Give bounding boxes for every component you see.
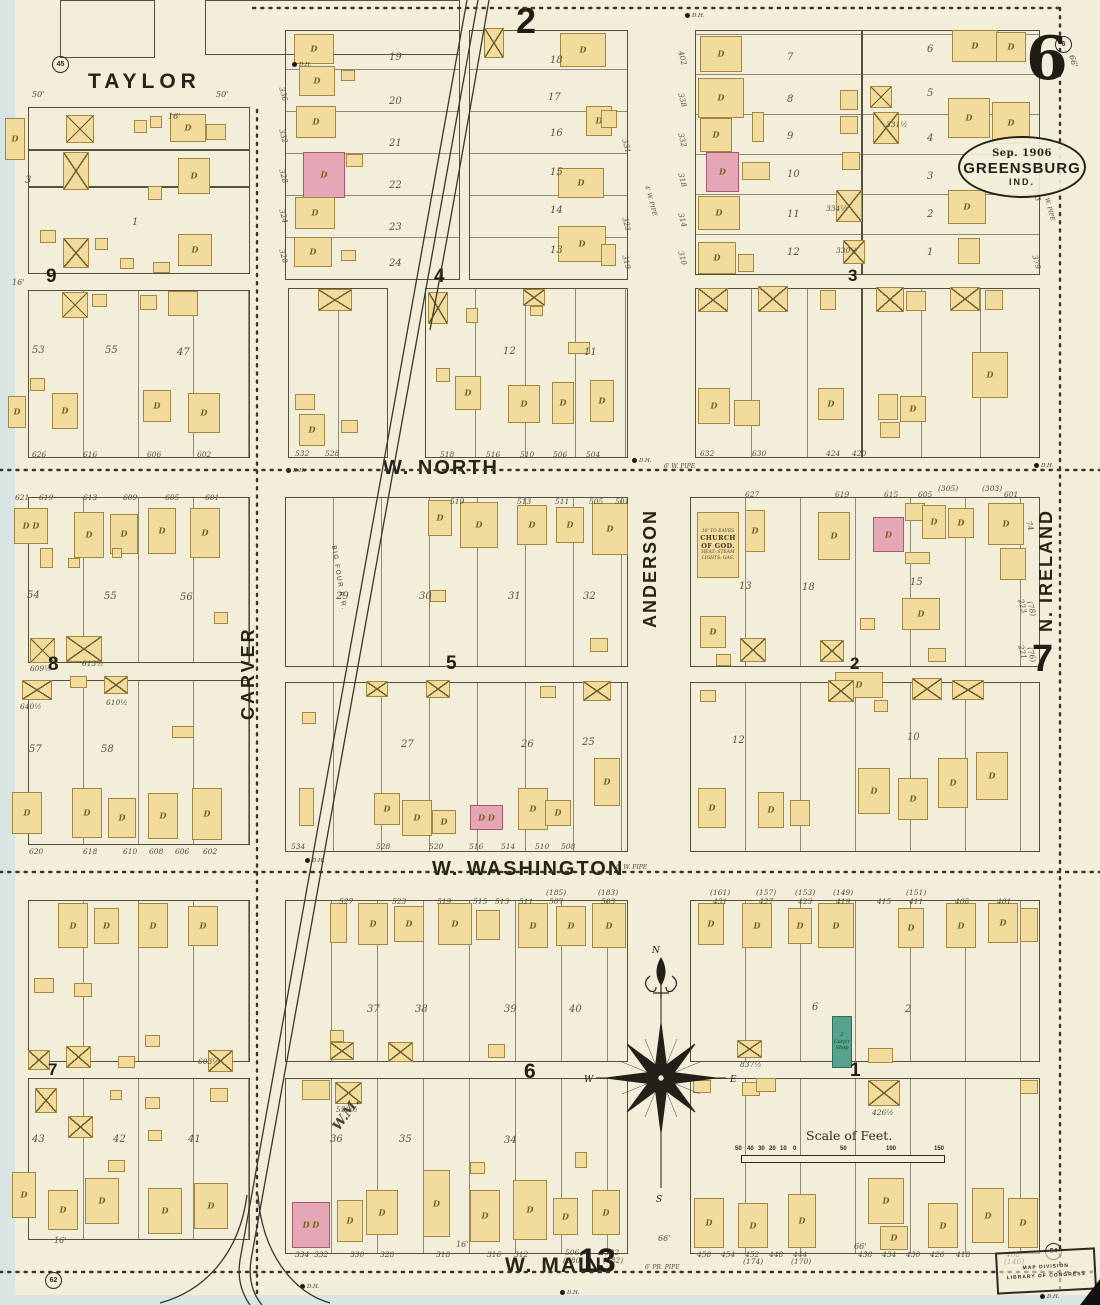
house-number: 602 (203, 847, 217, 856)
street-name: ANDERSON (640, 509, 661, 628)
building-frame: D (594, 758, 620, 806)
house-number: 430 (906, 1250, 920, 1259)
dwelling-label: D (699, 919, 723, 929)
building-outbuilding (868, 1080, 900, 1106)
building-frame (476, 910, 500, 940)
stamp-line-1: MAP DIVISION (1022, 1262, 1069, 1270)
building-frame: D (432, 810, 456, 834)
dwelling-label: D (149, 811, 177, 821)
dwelling-label: D (179, 245, 211, 255)
dwelling-label: D (75, 530, 103, 540)
building-frame: D (12, 792, 42, 834)
church-label-line: OF GOD. (701, 542, 735, 550)
circled-marker: 45 (52, 56, 69, 73)
building-frame: D (788, 1194, 816, 1248)
building-frame (341, 70, 355, 81)
lot-number: 13 (550, 245, 563, 256)
building-outbuilding (318, 289, 352, 311)
building-frame: D (996, 32, 1026, 62)
building-frame (68, 558, 80, 568)
dwelling-label: D (746, 526, 764, 536)
building-frame (734, 400, 760, 426)
hydrant-dot (305, 858, 310, 863)
house-number: 501 (615, 497, 629, 506)
building-frame: D (898, 778, 928, 820)
house-number: 419 (836, 897, 850, 906)
house-number: 318 (436, 1250, 450, 1259)
lot-number: 2 (905, 1004, 911, 1015)
lot-number: 58 (101, 744, 114, 755)
dwelling-label: D (593, 920, 625, 930)
hydrant-dot (632, 458, 637, 463)
building-frame (295, 394, 315, 410)
house-number: 606 (175, 847, 189, 856)
lot-number: 20 (389, 96, 402, 107)
lot-number: 7 (787, 52, 793, 63)
dwelling-label: D (179, 171, 209, 181)
building-frame: D (948, 98, 990, 138)
lot-number: 27 (401, 739, 414, 750)
pipe-label: 6' W. PIPE (664, 463, 695, 470)
building-frame: D (394, 906, 424, 942)
building-frame: D (556, 507, 584, 543)
house-number: (303) (982, 484, 1002, 493)
building-frame (790, 800, 810, 826)
dh-hydrant-marker: D.H. (560, 1290, 580, 1296)
block-number: 8 (48, 654, 59, 676)
building-frame: D (148, 793, 178, 839)
hydrant-dot (685, 13, 690, 18)
lot-number: 57 (29, 744, 42, 755)
hydrant-label: D.H. (299, 62, 312, 68)
lot-number: 9 (787, 131, 793, 142)
house-number: 316 (487, 1250, 501, 1259)
dwelling-label: D (789, 921, 811, 931)
building-frame (860, 618, 875, 630)
lot-number: 55 (104, 591, 117, 602)
building-frame (74, 983, 92, 997)
city-block (28, 150, 250, 187)
building-outbuilding (876, 287, 904, 312)
house-number: (149) (833, 888, 853, 897)
dwelling-label: D (707, 167, 738, 177)
house-number: 418 (956, 1250, 970, 1259)
building-frame: D (946, 903, 976, 948)
dh-hydrant-marker: D.H. (286, 468, 306, 474)
building-frame (840, 116, 858, 134)
dwelling-label: D (977, 771, 1007, 781)
building-frame: D (518, 788, 548, 830)
building-outbuilding (35, 1088, 57, 1113)
house-number: 515 (473, 897, 487, 906)
dwelling-label: D (304, 170, 344, 180)
building-frame: D (428, 500, 452, 536)
dwelling-label: D (359, 919, 387, 929)
sanborn-map-page: DDDDDDDDDDDDDDDDDDDDDDDDDDDDDDDDDDDDDDDD… (0, 0, 1100, 1305)
building-frame: D (868, 1178, 904, 1224)
dh-hydrant-marker: D.H. (292, 62, 312, 68)
map-canvas: DDDDDDDDDDDDDDDDDDDDDDDDDDDDDDDDDDDDDDDD… (0, 0, 1100, 1305)
lot-number: 19 (389, 52, 402, 63)
building-frame (693, 1080, 711, 1093)
dwelling-label: D (874, 529, 903, 539)
building-frame (34, 978, 54, 993)
block-number: 9 (46, 266, 57, 288)
building-frame: D (952, 30, 998, 62)
house-number: 504 (586, 450, 600, 459)
house-number: (161) (710, 888, 730, 897)
building-frame: D (758, 792, 784, 828)
house-number: 605 (918, 490, 932, 499)
dwelling-label: D (819, 399, 843, 409)
hydrant-label: D.H. (567, 1290, 580, 1296)
building-frame (118, 1056, 135, 1068)
building-frame (110, 1090, 122, 1100)
house-number: 330 (350, 1250, 364, 1259)
dh-hydrant-marker: D.H. (685, 13, 705, 19)
lot-number: 3 (927, 171, 933, 182)
circled-marker: 62 (45, 1272, 62, 1289)
hydrant-dot (286, 468, 291, 473)
building-frame (601, 244, 616, 266)
building-frame: D (698, 78, 744, 118)
house-number: 519 (437, 897, 451, 906)
dwelling-label: D (546, 808, 570, 818)
dwelling-label: D (973, 1210, 1003, 1220)
lot-number: 42 (113, 1134, 126, 1145)
building-outbuilding (428, 292, 448, 324)
scale-tick-label: 0 (793, 1146, 796, 1152)
house-number: 511 (555, 497, 569, 506)
house-number: 619 (39, 493, 53, 502)
house-number: 318 (676, 172, 688, 188)
lot-number: 3 (25, 175, 31, 186)
building-frame: D (85, 1178, 119, 1224)
building-frame: D (192, 788, 222, 840)
page-corner-fold (1080, 1279, 1100, 1305)
dwelling-label: D (973, 370, 1007, 380)
building-frame: D (880, 1226, 908, 1250)
lot-number: 1 (927, 247, 933, 258)
lot-number: 2 (927, 209, 933, 220)
building-frame: D (148, 1188, 182, 1234)
dwelling-label: D (456, 388, 480, 398)
dwelling-label: D (859, 786, 889, 796)
dwelling-label: D (439, 919, 471, 929)
dwelling-label: D (695, 1218, 723, 1228)
lot-number: 10 (907, 732, 920, 743)
dwelling-label: D (949, 518, 973, 528)
building-frame (40, 230, 56, 243)
building-frame: D (545, 800, 571, 826)
house-number: 334 (295, 1250, 309, 1259)
building-frame: D (455, 376, 481, 410)
building-frame (958, 238, 980, 264)
dwelling-label: D (949, 202, 985, 212)
dwelling-label: D (699, 208, 739, 218)
church-label-line: CHURCH (700, 534, 736, 542)
dwelling-label: D (699, 253, 735, 263)
building-brick: D (873, 517, 904, 552)
building-frame (985, 290, 1003, 310)
building-frame: D (738, 1203, 768, 1248)
building-frame: D (558, 168, 604, 198)
building-outbuilding (366, 681, 388, 697)
building-frame (1000, 548, 1026, 580)
house-number: (185) (546, 888, 566, 897)
hydrant-label: D.H. (692, 13, 705, 19)
lot-number: 25 (582, 737, 595, 748)
house-number: 527 (339, 897, 353, 906)
building-frame (148, 1130, 162, 1141)
hydrant-dot (300, 1284, 305, 1289)
building-outbuilding (68, 1116, 93, 1138)
street-name: W. WASHINGTON (432, 858, 624, 881)
building-frame: D (700, 36, 742, 72)
building-outbuilding (66, 1046, 91, 1068)
dwelling-label: D (561, 45, 605, 55)
house-number: 626 (32, 450, 46, 459)
hydrant-dot (1040, 1294, 1045, 1299)
building-brick: D (303, 152, 345, 198)
building-frame: D (592, 503, 628, 555)
block-number: 7 (1032, 638, 1053, 681)
shop-label-line: Shop (836, 1045, 849, 1052)
dwelling-label: D (739, 1220, 767, 1230)
dwelling-label: D (49, 1205, 77, 1215)
dwelling-label: D (743, 920, 771, 930)
lot-number: 11 (584, 347, 597, 358)
dwelling-label: D (13, 1190, 35, 1200)
building-frame: D (517, 505, 547, 545)
dwelling-label: D (819, 531, 849, 541)
dwelling-label: D (939, 778, 967, 788)
house-number: 621 (15, 493, 29, 502)
dwelling-label: D (297, 117, 335, 127)
building-frame: D (296, 106, 336, 138)
dwelling-label: D (518, 520, 546, 530)
dimension-label: 66' (1067, 54, 1079, 68)
building-frame: D (188, 906, 218, 946)
house-number: (305) (938, 484, 958, 493)
house-number: 510 (535, 842, 549, 851)
house-number: 619 (835, 490, 849, 499)
dwelling-label: D (557, 921, 585, 931)
dwelling-label: D (424, 1198, 449, 1208)
scale-tick-label: 100 (886, 1146, 896, 1152)
house-number: 507 (549, 897, 563, 906)
dwelling-label: D (300, 425, 324, 435)
building-frame (928, 648, 946, 662)
dwelling-label: D (869, 1196, 903, 1206)
house-number: 420 (852, 449, 866, 458)
house-number: (170) (791, 1257, 811, 1266)
dwelling-label: D (593, 1207, 619, 1217)
building-frame (742, 162, 770, 180)
dwelling-label: D (993, 118, 1029, 128)
house-number: 513 (495, 897, 509, 906)
dwelling-label: D (509, 399, 539, 409)
building-frame (341, 420, 358, 433)
building-outbuilding (484, 28, 504, 58)
lot-number: 11 (787, 209, 800, 220)
lot-number: 16 (550, 128, 563, 139)
scale-tick-label: 50 (840, 1146, 847, 1152)
lot-number: 39 (504, 1004, 517, 1015)
dh-hydrant-marker: D.H. (1034, 463, 1054, 469)
building-outbuilding (583, 681, 611, 701)
building-frame: D (1008, 1198, 1038, 1248)
building-frame: D (366, 1190, 398, 1235)
house-number: 613½ (82, 659, 104, 668)
building-outbuilding (952, 680, 984, 700)
dwelling-label: D (191, 528, 219, 538)
building-frame: D (698, 903, 724, 945)
building-frame: D (12, 1172, 36, 1218)
hydrant-dot (292, 62, 297, 67)
house-number: (183) (598, 888, 618, 897)
dwelling-label: D (86, 1196, 118, 1206)
building-outbuilding (523, 289, 545, 306)
dwelling-label: D (701, 49, 741, 59)
building-frame: D (299, 66, 335, 96)
house-number: 427 (759, 897, 773, 906)
dwelling-label: D (403, 813, 431, 823)
lot-number: 47 (177, 347, 190, 358)
building-frame: D (552, 382, 574, 424)
building-frame (92, 294, 107, 307)
dwelling-label: D (947, 920, 975, 930)
dh-hydrant-marker: D.H. (300, 1284, 320, 1290)
dwelling-label: D (1009, 1218, 1037, 1228)
house-number: 458 (697, 1250, 711, 1259)
scale-tick-label: 40 (747, 1146, 754, 1152)
building-frame: D (698, 388, 730, 424)
map-city-name: GREENSBURG (963, 160, 1081, 177)
dwelling-label: D (296, 208, 334, 218)
house-number: 516 (469, 842, 483, 851)
house-number: 615 (884, 490, 898, 499)
house-number: 330½ (836, 246, 858, 255)
house-number: 415 (877, 897, 891, 906)
dh-hydrant-marker: D.H. (305, 858, 325, 864)
dwelling-label: D (899, 794, 927, 804)
building-outbuilding (22, 680, 52, 700)
house-number: 513 (517, 497, 531, 506)
map-title-oval: Sep. 1906 GREENSBURG IND. (958, 136, 1086, 198)
lot-number: 17 (548, 92, 561, 103)
dwelling-label: D (95, 921, 118, 931)
dwelling-label: D (514, 1205, 546, 1215)
building-outbuilding (912, 678, 942, 700)
building-frame (470, 1162, 485, 1174)
building-frame (738, 254, 754, 272)
building-frame (120, 258, 134, 269)
building-frame: D (108, 798, 136, 838)
lot-number: 40 (569, 1004, 582, 1015)
dwelling-label: D (519, 804, 547, 814)
house-number: 602 (197, 450, 211, 459)
building-frame (172, 726, 194, 738)
building-frame (540, 686, 556, 698)
dimension-label: 16' (168, 112, 180, 121)
dwelling-label: D (53, 406, 77, 416)
house-number: 632 (700, 449, 714, 458)
block-number: 5 (446, 653, 457, 675)
building-frame (330, 1030, 344, 1042)
building-frame: D (592, 903, 626, 948)
house-number: 520 (429, 842, 443, 851)
dwelling-label: D (300, 76, 334, 86)
building-frame: D D (14, 508, 48, 544)
street-name: CARVER (238, 626, 259, 720)
hydrant-dot (560, 1290, 565, 1295)
building-frame (756, 1078, 776, 1092)
hydrant-label: D.H. (1047, 1294, 1060, 1300)
building-frame (1020, 1080, 1038, 1094)
building-frame (299, 788, 314, 826)
house-number: 332 (314, 1250, 328, 1259)
building-frame (700, 690, 716, 702)
building-frame: D (818, 512, 850, 560)
building-frame: D (423, 1170, 450, 1237)
pipe-label: 4' W. PIPE (643, 185, 658, 217)
house-number: 605 (165, 493, 179, 502)
scale-tick-label: 10 (780, 1146, 787, 1152)
dwelling-label: D (699, 401, 729, 411)
dwelling-label: D (819, 920, 853, 930)
house-number: 338 (676, 92, 688, 108)
lot-number: 10 (787, 169, 800, 180)
building-frame (330, 903, 347, 943)
lot-number: 12 (503, 346, 516, 357)
building-frame: D (972, 1188, 1004, 1243)
lot-number: 4 (927, 133, 933, 144)
house-number: 424 (826, 449, 840, 458)
house-number: 454 (721, 1250, 735, 1259)
dwelling-label: D (593, 524, 627, 534)
lot-number: 1 (132, 217, 138, 228)
building-frame: D (294, 34, 334, 64)
building-frame (530, 306, 543, 316)
building-frame: D (188, 393, 220, 433)
dh-hydrant-marker: D.H. (1040, 1294, 1060, 1300)
building-frame: D (694, 1198, 724, 1248)
building-frame (430, 590, 446, 602)
building-frame (214, 612, 228, 624)
house-number: 328 (380, 1250, 394, 1259)
dwelling-label: D (789, 1216, 815, 1226)
dwelling-label: D (429, 513, 451, 523)
house-number: 405 (955, 897, 969, 906)
house-number: 606 (147, 450, 161, 459)
lot-number: 38 (415, 1004, 428, 1015)
dwelling-label: D (989, 918, 1017, 928)
building-frame: D (48, 1190, 78, 1230)
building-frame: D (194, 1183, 228, 1229)
house-number: 534 (291, 842, 305, 851)
building-frame: D (972, 352, 1008, 398)
building-outbuilding (63, 152, 89, 190)
house-number: 508 (561, 842, 575, 851)
block-number: 4 (434, 266, 445, 288)
building-frame: D (922, 505, 946, 539)
building-outbuilding (62, 292, 88, 318)
building-outbuilding (740, 638, 766, 662)
dwelling-label: D (701, 130, 731, 140)
dwelling-label: D (375, 804, 399, 814)
lot-number: 30 (419, 591, 432, 602)
